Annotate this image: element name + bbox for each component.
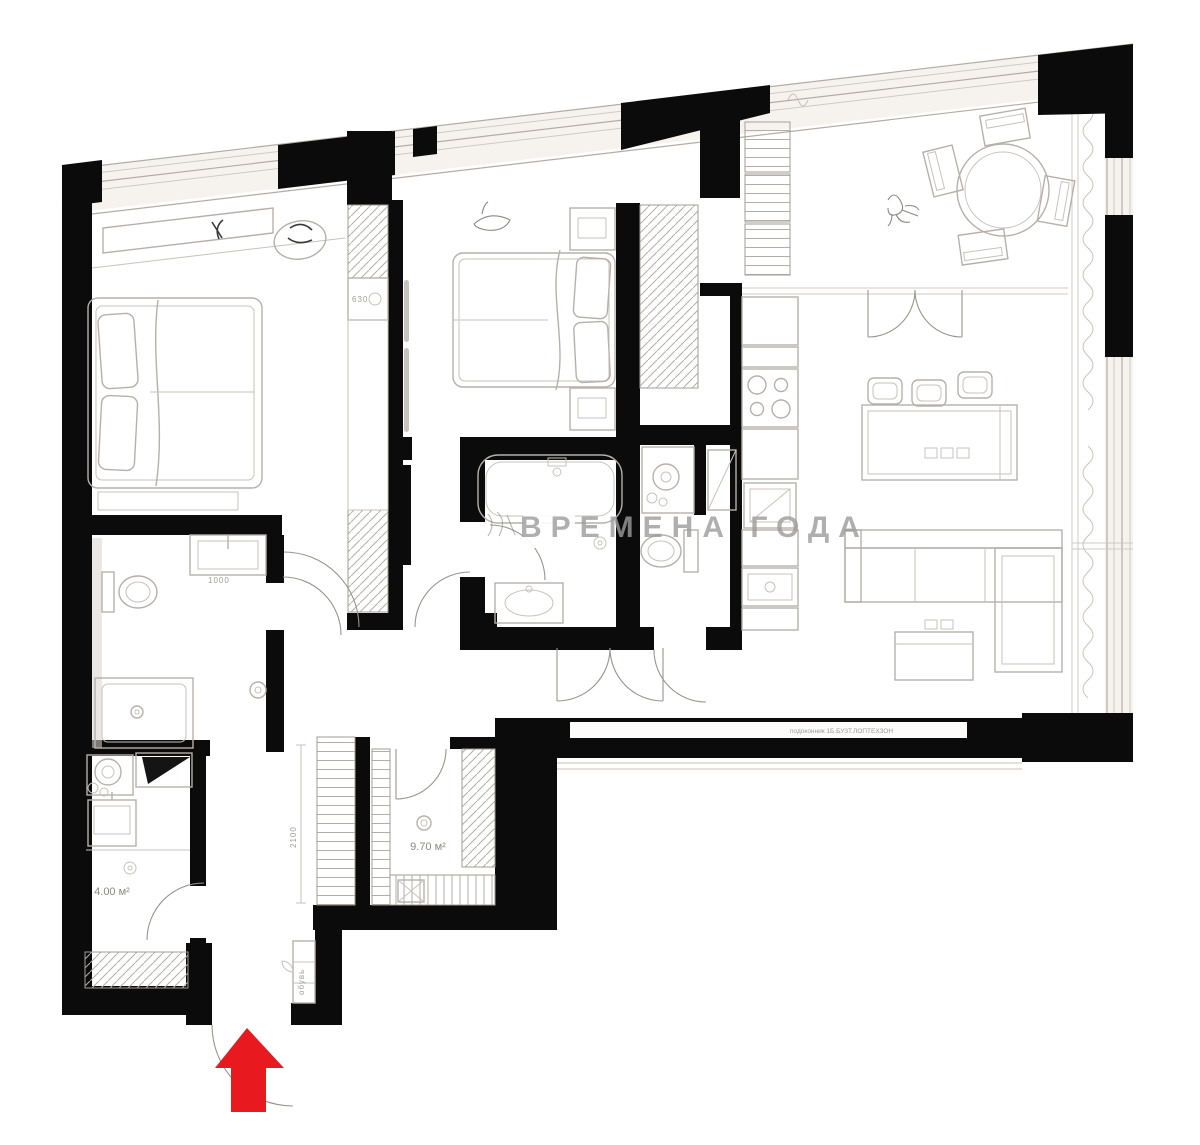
nightstand [570, 208, 615, 250]
kitchen [742, 122, 1017, 630]
light-symbol [417, 816, 431, 830]
watermark: ВРЕМЕНА ГОДА [488, 504, 869, 548]
shoe-cabinet-label: обувь [297, 969, 306, 995]
laundry-door-swing [147, 883, 204, 940]
sill-note-text: подоконник 1Б.БУЗТ.ЛОПТЕХЗОН [790, 728, 893, 735]
washbasin [495, 583, 563, 623]
washbasin [190, 535, 266, 575]
bar-stool [868, 378, 902, 404]
dining-chair [980, 108, 1031, 146]
mirror-arc [282, 961, 293, 972]
bed-double [453, 250, 615, 390]
hallway-wardrobe [317, 737, 355, 905]
pantry-wardrobe [640, 205, 698, 388]
window-band-top [62, 44, 1133, 214]
dining-area [742, 108, 1075, 337]
floor-drain-icon [250, 682, 266, 698]
hob-icon [742, 369, 798, 427]
dim-630: 630 [352, 295, 368, 304]
closet-shelving-left [372, 749, 390, 905]
shower-glass [92, 538, 102, 748]
remote [941, 620, 953, 629]
wc-door-swing [654, 650, 706, 702]
kitchen-counter-run [742, 297, 798, 630]
curtain-icon [1083, 104, 1093, 698]
wc [641, 447, 736, 572]
shoe-cabinet: обувь [282, 941, 315, 1003]
living-room [845, 530, 1062, 680]
blanket-fold [556, 250, 560, 390]
corridor-double-door [557, 648, 663, 701]
coffee-table [895, 632, 973, 680]
washer-dryer [87, 755, 133, 796]
pillow [573, 257, 611, 319]
sofa-l-shaped [845, 530, 1062, 672]
floor-plan-drawing: подоконник 1Б.БУЗТ.ЛОПТЕХЗОН 630 [0, 0, 1200, 1145]
decor-sketch [474, 202, 510, 230]
window-band-right [1072, 95, 1133, 715]
dining-chair [1037, 176, 1075, 227]
toilet [102, 572, 157, 612]
desk [103, 208, 273, 253]
closet-wardrobe-right [462, 749, 495, 867]
laundry-area-label: 4.00 м² [94, 886, 130, 898]
double-door-dining [868, 290, 962, 337]
blanket-fold [156, 300, 160, 486]
shower-area [95, 678, 193, 748]
bench [98, 492, 238, 510]
closet-door-swing [396, 749, 446, 799]
bathroom-2: 1000 [92, 535, 266, 748]
bedroom-2 [453, 202, 615, 430]
bedroom-1: 630 [88, 205, 409, 612]
tap-icon [526, 586, 532, 592]
floor-plan-page: подоконник 1Б.БУЗТ.ЛОПТЕХЗОН 630 [0, 0, 1200, 1145]
laundry: 4.00 м² [86, 753, 192, 898]
walk-in-closet: 9.70 м² 2100 [289, 737, 495, 905]
bar-stool [958, 372, 992, 398]
utility-sink [88, 792, 136, 846]
pillow [573, 321, 610, 383]
nightstand [570, 388, 615, 430]
dim-2100: 2100 [289, 826, 298, 848]
sliding-door-handle [404, 348, 409, 432]
remote [925, 620, 937, 629]
floor-drain-icon [131, 706, 143, 718]
dining-table [957, 144, 1049, 236]
bar-stool [912, 380, 946, 406]
bed-double [88, 298, 262, 488]
entry-wardrobe [85, 952, 188, 988]
wardrobe-bedroom-1: 630 [348, 205, 388, 612]
dim-1000: 1000 [208, 576, 230, 585]
kitchen-sink [742, 568, 798, 606]
tall-cabinets-fridge [745, 122, 790, 275]
dining-chair [958, 229, 1008, 265]
washing-machine [642, 447, 694, 513]
watermark-text: ВРЕМЕНА ГОДА [520, 511, 869, 544]
desk-chair [271, 217, 329, 263]
dimension-line: 2100 [289, 745, 306, 903]
pillow [97, 313, 138, 389]
section-mark [212, 220, 223, 239]
hamper [136, 753, 192, 787]
plant-sketch [888, 195, 919, 226]
bathroom-2-door-swing [283, 577, 341, 635]
tap-icon [553, 468, 561, 476]
drain-icon [124, 862, 136, 874]
pillow [98, 395, 138, 471]
kitchen-island [862, 405, 1017, 480]
sliding-door-handle [404, 280, 409, 342]
closet-area-label: 9.70 м² [410, 841, 446, 853]
